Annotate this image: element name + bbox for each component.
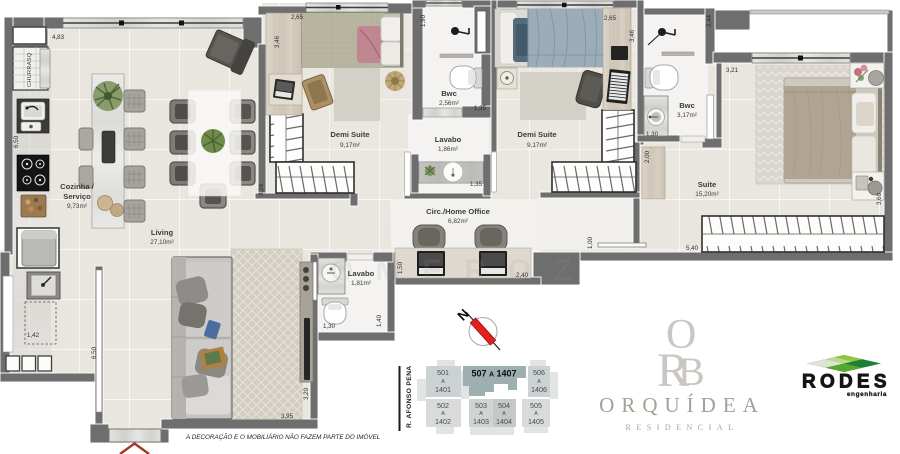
svg-text:CHURRASQ: CHURRASQ xyxy=(27,52,33,87)
svg-text:1,42: 1,42 xyxy=(27,332,40,339)
svg-text:2,56m²: 2,56m² xyxy=(439,100,459,107)
svg-text:Lavabo: Lavabo xyxy=(348,269,375,278)
svg-text:Bwc: Bwc xyxy=(679,101,695,110)
svg-text:3,21: 3,21 xyxy=(726,67,739,74)
svg-text:B: B xyxy=(678,349,705,394)
svg-text:Circ./Home Office: Circ./Home Office xyxy=(426,207,490,216)
svg-text:3,17m²: 3,17m² xyxy=(677,112,697,119)
svg-text:2,65: 2,65 xyxy=(604,15,617,22)
svg-text:503: 503 xyxy=(475,401,487,410)
svg-text:3,60: 3,60 xyxy=(876,192,883,205)
svg-text:507 A 1407: 507 A 1407 xyxy=(471,369,516,379)
svg-text:1,35: 1,35 xyxy=(474,105,487,112)
svg-text:6,50: 6,50 xyxy=(13,135,20,148)
svg-text:1,35: 1,35 xyxy=(470,181,483,188)
svg-text:A DECORAÇÃO E O MOBILIÁRIO NÃ: A DECORAÇÃO E O MOBILIÁRIO NÃO FAZEM PAR… xyxy=(185,432,381,441)
svg-text:4,83: 4,83 xyxy=(52,34,65,41)
svg-text:6,82m²: 6,82m² xyxy=(448,218,468,225)
svg-text:15,20m²: 15,20m² xyxy=(695,191,718,198)
svg-text:9,17m²: 9,17m² xyxy=(340,142,360,149)
svg-text:1401: 1401 xyxy=(435,385,451,394)
svg-text:502: 502 xyxy=(437,401,449,410)
svg-text:ORQUÍDEA: ORQUÍDEA xyxy=(599,393,765,417)
svg-text:1402: 1402 xyxy=(435,417,451,426)
svg-text:1,90: 1,90 xyxy=(420,14,427,27)
svg-text:1,40: 1,40 xyxy=(376,314,383,327)
svg-text:504: 504 xyxy=(498,401,510,410)
svg-text:1,86m²: 1,86m² xyxy=(438,146,458,153)
svg-text:2,65: 2,65 xyxy=(291,14,304,21)
svg-text:Suite: Suite xyxy=(698,180,717,189)
svg-text:Cozinha /: Cozinha / xyxy=(60,182,95,191)
svg-text:Demi Suite: Demi Suite xyxy=(330,130,369,139)
svg-text:3,95: 3,95 xyxy=(281,413,294,420)
svg-text:501: 501 xyxy=(437,368,449,377)
svg-text:Living: Living xyxy=(151,228,174,237)
svg-text:Demi Suite: Demi Suite xyxy=(517,130,556,139)
svg-text:3,46: 3,46 xyxy=(629,29,636,42)
svg-text:9,73m²: 9,73m² xyxy=(67,203,87,210)
svg-text:2,40: 2,40 xyxy=(516,272,529,279)
svg-text:2,00: 2,00 xyxy=(644,150,651,163)
svg-text:RESIDENCIAL: RESIDENCIAL xyxy=(626,423,739,432)
svg-text:5,40: 5,40 xyxy=(686,245,699,252)
svg-text:3,46: 3,46 xyxy=(274,35,281,48)
svg-text:1,00: 1,00 xyxy=(587,236,594,249)
svg-text:1405: 1405 xyxy=(528,417,544,426)
svg-text:Bwc: Bwc xyxy=(441,89,457,98)
svg-text:RODES: RODES xyxy=(802,372,888,393)
svg-text:1,50: 1,50 xyxy=(397,261,404,274)
svg-text:1403: 1403 xyxy=(473,417,489,426)
svg-text:6,50: 6,50 xyxy=(91,346,98,359)
svg-text:1404: 1404 xyxy=(496,417,512,426)
svg-text:506: 506 xyxy=(533,368,545,377)
svg-text:3,20: 3,20 xyxy=(303,387,310,400)
svg-text:9,17m²: 9,17m² xyxy=(527,142,547,149)
svg-text:Lavabo: Lavabo xyxy=(435,135,462,144)
svg-text:1,81m²: 1,81m² xyxy=(351,280,371,287)
svg-text:Serviço: Serviço xyxy=(63,192,91,201)
svg-text:1406: 1406 xyxy=(531,385,547,394)
svg-text:engenharia: engenharia xyxy=(847,391,887,398)
svg-text:1,30: 1,30 xyxy=(323,323,336,330)
svg-text:2,44: 2,44 xyxy=(706,14,713,27)
svg-text:3,24: 3,24 xyxy=(258,183,265,196)
svg-text:505: 505 xyxy=(530,401,542,410)
svg-text:27,10m²: 27,10m² xyxy=(150,239,173,246)
svg-text:1,30: 1,30 xyxy=(646,131,659,138)
svg-text:R. AFONSO PENA: R. AFONSO PENA xyxy=(406,366,413,428)
